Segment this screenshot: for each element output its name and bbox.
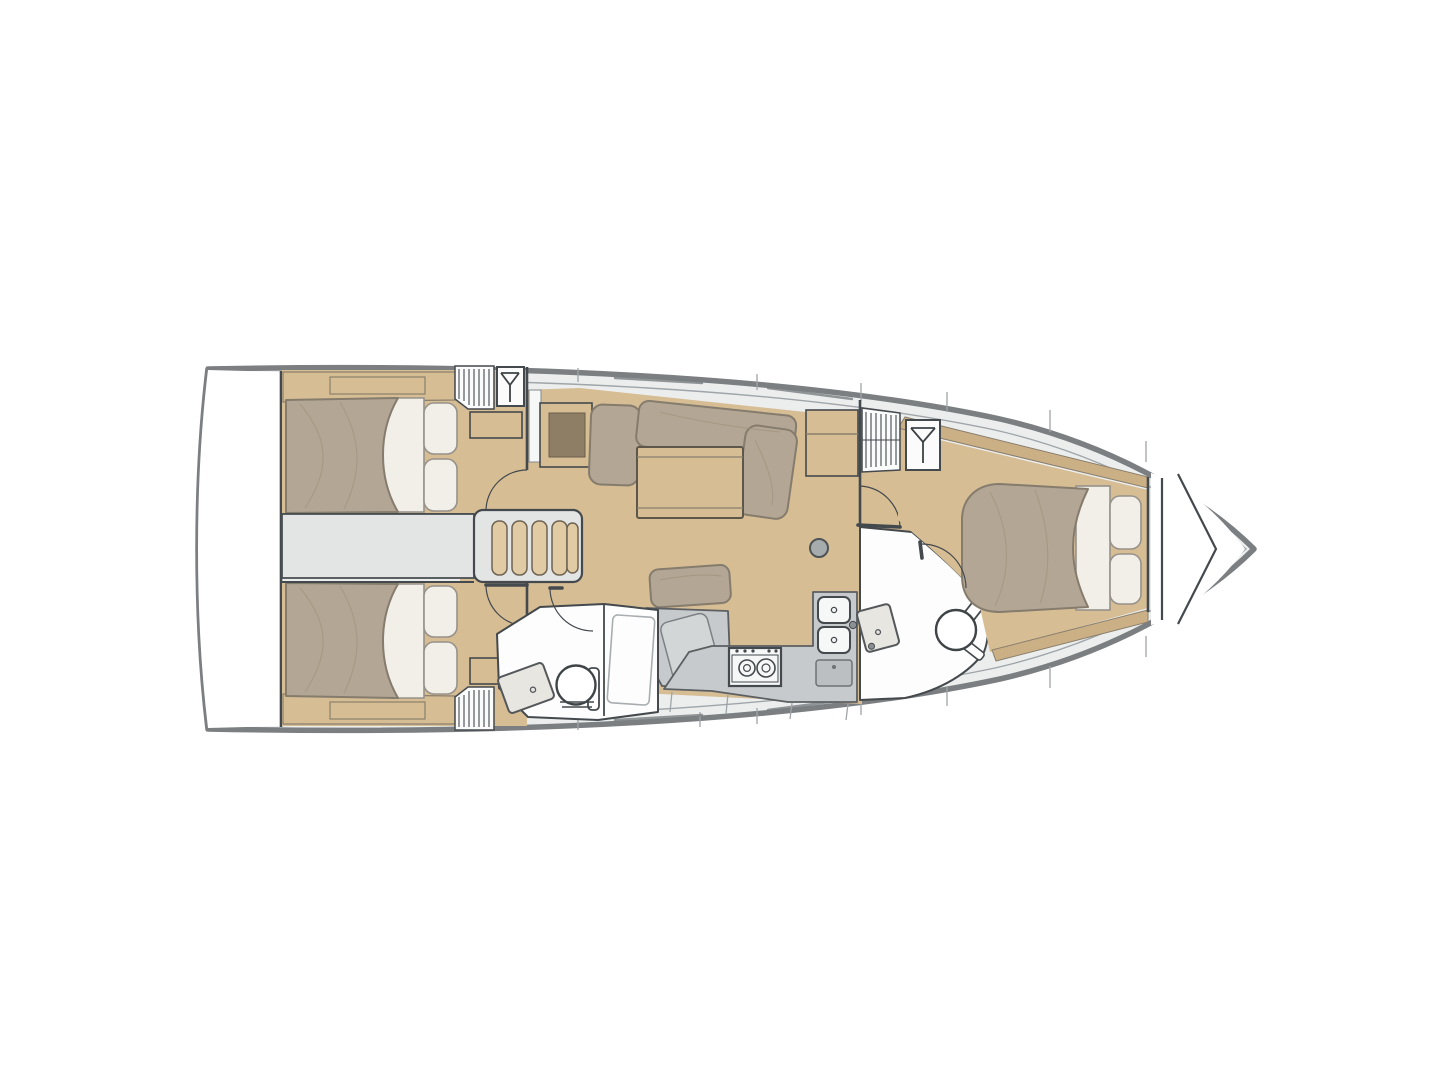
pillow bbox=[424, 459, 457, 511]
pillow bbox=[1110, 554, 1141, 604]
transom-locker bbox=[198, 370, 281, 728]
anchor-locker bbox=[1151, 473, 1245, 625]
nightstand bbox=[470, 412, 522, 438]
vent-grate-icon bbox=[455, 366, 494, 409]
companionway-steps bbox=[492, 521, 578, 575]
boat-floor-plan bbox=[0, 0, 1440, 1080]
wardrobe bbox=[906, 420, 940, 470]
pillow bbox=[424, 403, 457, 454]
double-berth-duvet bbox=[286, 398, 398, 513]
engine-room bbox=[282, 514, 474, 578]
head-door bbox=[858, 525, 900, 527]
pillow bbox=[424, 586, 457, 637]
engine-room-companionway bbox=[282, 510, 582, 582]
galley-locker bbox=[816, 660, 852, 686]
faucet bbox=[849, 621, 856, 628]
nav-seat-cushion bbox=[649, 564, 731, 607]
vent-grate-icon bbox=[455, 687, 494, 730]
aft-cabin-port bbox=[282, 366, 541, 514]
saloon-table bbox=[637, 447, 743, 518]
settee-chaise-cushion bbox=[589, 404, 642, 486]
hanging-locker bbox=[862, 408, 900, 472]
aft-cabin-starboard bbox=[282, 582, 527, 730]
v-berth-duvet bbox=[962, 484, 1088, 612]
transom-area bbox=[198, 370, 281, 728]
pillow bbox=[1110, 496, 1141, 549]
cabin-door bbox=[920, 542, 922, 558]
top-loading-locker bbox=[540, 403, 592, 467]
stove-icon bbox=[729, 648, 781, 686]
double-berth-duvet bbox=[286, 583, 398, 698]
pillow bbox=[424, 642, 457, 694]
settee-corner-cushion bbox=[734, 424, 798, 520]
sideboard-cabinet bbox=[806, 410, 858, 476]
mast-post bbox=[810, 539, 828, 557]
floor-plan-canvas bbox=[0, 0, 1440, 1080]
wardrobe bbox=[497, 367, 524, 406]
